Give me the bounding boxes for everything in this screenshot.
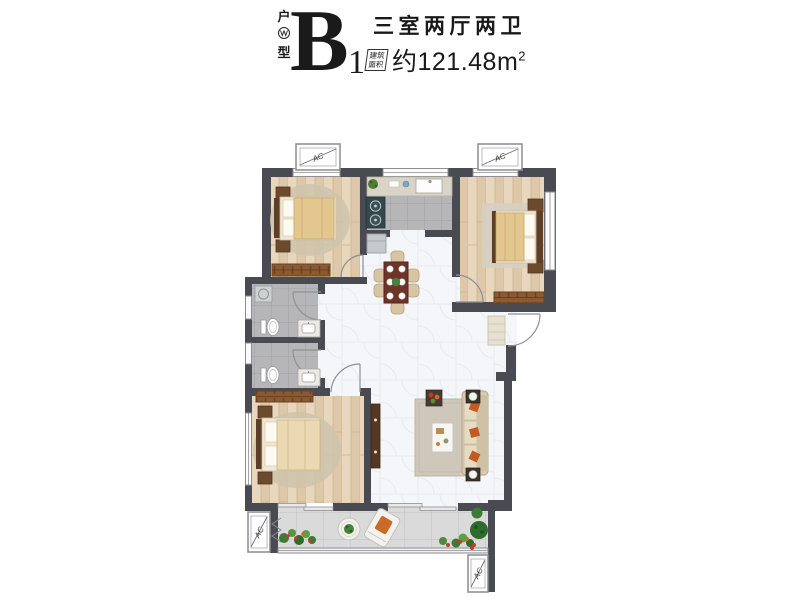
balcony-table xyxy=(338,518,360,540)
washbasin-2 xyxy=(298,369,320,386)
shoe-cabinet xyxy=(488,316,505,345)
ac-unit-bottom-right: AC xyxy=(468,555,488,592)
dining-chair xyxy=(391,302,404,314)
sink-faucet xyxy=(428,180,431,183)
window-bathroom2 xyxy=(246,343,252,364)
kitchen-plant xyxy=(368,179,378,189)
washing-machine xyxy=(255,286,272,302)
centerpiece-plant xyxy=(392,278,400,286)
bowl xyxy=(403,181,409,187)
wardrobe xyxy=(256,391,313,402)
plate xyxy=(399,266,405,272)
ac-unit-top-left: AC xyxy=(296,144,340,170)
plate xyxy=(387,266,393,272)
plate xyxy=(399,293,405,299)
stove xyxy=(366,197,385,228)
window-bedroom-topright-east xyxy=(545,192,555,270)
tv-cabinet xyxy=(371,404,380,468)
entry-area xyxy=(488,316,505,345)
dining-chair xyxy=(407,269,419,282)
cutting-board xyxy=(389,181,399,187)
balcony-glass-railing xyxy=(278,548,488,553)
floorplan-page: 户 型 B 1 三室两厅两卫 建筑 面积 约121.48m2 xyxy=(0,0,800,600)
side-table xyxy=(466,390,480,403)
toilet-1 xyxy=(261,319,279,336)
flower-stand xyxy=(426,390,442,406)
dining-chair xyxy=(407,284,419,297)
ac-unit-balcony-left: AC xyxy=(248,512,270,552)
plate xyxy=(387,293,393,299)
ac-unit-top-right: AC xyxy=(478,144,522,170)
sofa xyxy=(462,391,488,475)
window-kitchen xyxy=(383,169,448,177)
window-bedroom-bottomleft xyxy=(246,413,252,485)
coffee-table xyxy=(432,423,453,452)
fridge xyxy=(367,234,386,253)
wardrobe xyxy=(494,292,544,303)
toilet-2 xyxy=(261,367,279,384)
floorplan: AC AC AC AC xyxy=(0,0,800,600)
side-table xyxy=(466,468,480,481)
dining-chair xyxy=(391,251,404,263)
wardrobe xyxy=(272,264,330,276)
washbasin-1 xyxy=(298,320,320,337)
window-bathroom1 xyxy=(246,296,252,319)
